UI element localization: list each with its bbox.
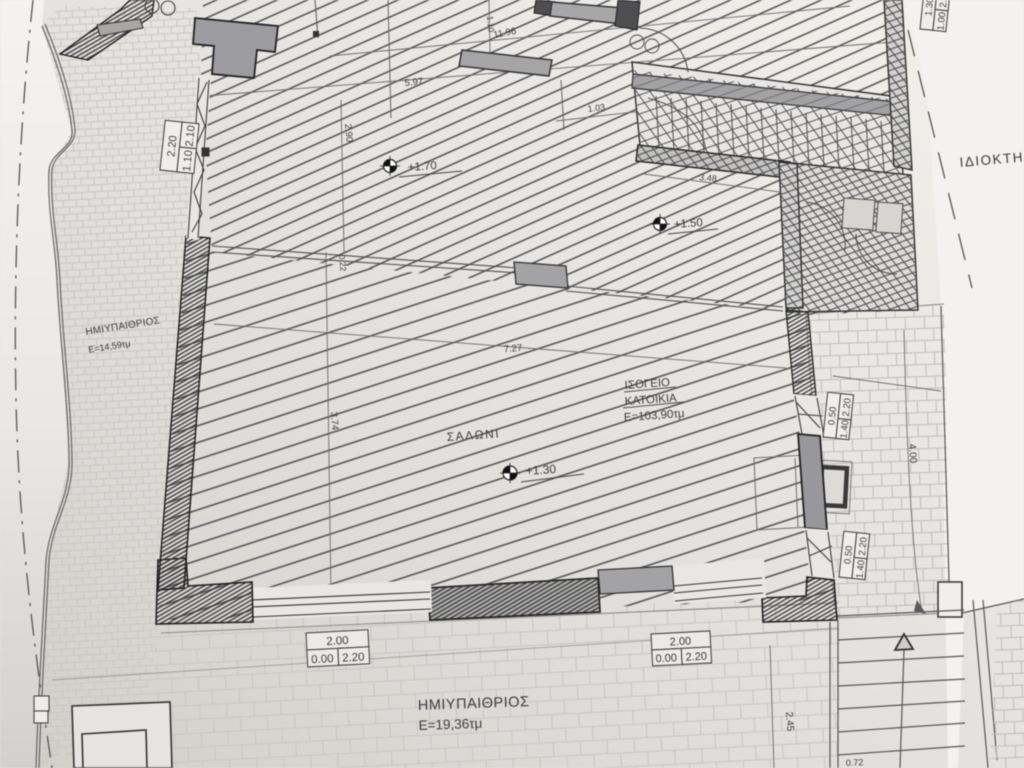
svg-text:4.00: 4.00 xyxy=(906,443,918,464)
svg-text:7.27: 7.27 xyxy=(503,343,522,355)
svg-text:3.74: 3.74 xyxy=(328,411,340,430)
svg-text:2.20: 2.20 xyxy=(938,0,951,8)
svg-text:2.20: 2.20 xyxy=(857,537,870,557)
svg-text:2.10: 2.10 xyxy=(184,125,198,148)
svg-text:2.20: 2.20 xyxy=(685,651,707,664)
svg-text:2.45: 2.45 xyxy=(783,711,795,732)
svg-text:2.00: 2.00 xyxy=(326,635,349,648)
svg-text:0.00: 0.00 xyxy=(655,652,677,665)
svg-text:0.00: 0.00 xyxy=(311,653,334,666)
svg-text:0.50: 0.50 xyxy=(826,406,839,426)
svg-text:2.90: 2.90 xyxy=(342,123,355,142)
svg-text:1.10: 1.10 xyxy=(485,15,496,33)
svg-text:1.03: 1.03 xyxy=(587,102,606,114)
svg-text:2.20: 2.20 xyxy=(841,398,854,418)
svg-text:1.40: 1.40 xyxy=(854,559,867,579)
svg-text:1.30: 1.30 xyxy=(923,0,936,17)
svg-text:+1.70: +1.70 xyxy=(407,160,437,174)
svg-text:Ε=19,36τμ: Ε=19,36τμ xyxy=(418,716,482,733)
svg-text:3.48: 3.48 xyxy=(699,172,717,184)
svg-text:0,22: 0,22 xyxy=(337,254,348,272)
svg-text:0.50: 0.50 xyxy=(842,545,855,565)
svg-text:2.00: 2.00 xyxy=(669,635,691,648)
svg-text:5.97: 5.97 xyxy=(404,76,424,89)
svg-text:1.10: 1.10 xyxy=(181,150,195,173)
svg-text:2.20: 2.20 xyxy=(342,651,365,664)
svg-text:2.20: 2.20 xyxy=(165,135,179,158)
svg-text:0.72: 0.72 xyxy=(846,757,864,768)
svg-text:+1.30: +1.30 xyxy=(525,462,557,478)
svg-text:1.40: 1.40 xyxy=(838,419,851,439)
svg-text:1.00: 1.00 xyxy=(935,11,948,31)
svg-text:+1.50: +1.50 xyxy=(673,217,703,231)
